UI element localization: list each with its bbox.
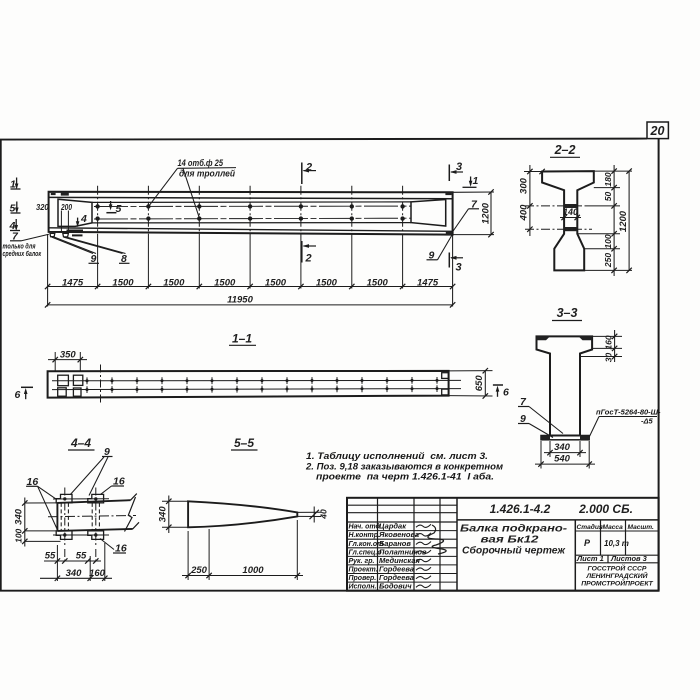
svg-text:4–4: 4–4	[70, 436, 91, 450]
svg-text:Исполн.: Исполн.	[349, 584, 377, 591]
svg-text:2.000 СБ.: 2.000 СБ.	[578, 502, 633, 516]
svg-text:250: 250	[190, 565, 208, 576]
svg-text:1: 1	[473, 175, 479, 187]
svg-text:Провер.: Провер.	[349, 575, 377, 582]
svg-text:1475: 1475	[417, 277, 439, 288]
svg-text:ЛЕНИНГРАДСКИЙ: ЛЕНИНГРАДСКИЙ	[585, 571, 647, 580]
svg-text:ГОССТРОЙ СССР: ГОССТРОЙ СССР	[588, 564, 647, 573]
svg-text:160: 160	[604, 335, 614, 349]
svg-text:3: 3	[456, 262, 462, 274]
svg-text:250: 250	[603, 253, 613, 268]
svg-text:2: 2	[305, 253, 312, 265]
svg-text:пГосТ-5264-80-Ш-: пГосТ-5264-80-Ш-	[596, 408, 661, 417]
svg-text:проекте па черт 1.426.1-41 I: проекте па черт 1.426.1-41 I аба.	[316, 472, 494, 483]
svg-text:1500: 1500	[112, 277, 134, 288]
svg-text:Стадия: Стадия	[577, 523, 603, 531]
svg-text:3: 3	[456, 161, 462, 173]
svg-text:Масса: Масса	[603, 524, 624, 531]
svg-text:Гл.спец.о: Гл.спец.о	[349, 549, 383, 556]
svg-text:55: 55	[76, 551, 87, 562]
svg-text:340: 340	[157, 506, 168, 523]
svg-text:1500: 1500	[316, 277, 338, 288]
svg-text:650: 650	[474, 375, 485, 392]
svg-text:400: 400	[519, 204, 530, 222]
svg-text:200: 200	[60, 203, 72, 212]
svg-text:50: 50	[603, 192, 613, 202]
svg-text:Р: Р	[584, 538, 591, 548]
svg-text:30: 30	[604, 353, 614, 363]
svg-text:10,3 т: 10,3 т	[604, 539, 629, 548]
svg-text:1500: 1500	[214, 277, 236, 288]
svg-text:350: 350	[60, 350, 77, 361]
svg-text:Н.контр.: Н.контр.	[349, 532, 381, 539]
svg-text:1475: 1475	[62, 277, 84, 288]
svg-text:для троллей: для троллей	[179, 169, 235, 180]
svg-text:1200: 1200	[481, 202, 492, 224]
svg-text:3–3: 3–3	[557, 306, 578, 320]
svg-text:40: 40	[318, 509, 328, 520]
svg-text:55: 55	[45, 551, 56, 562]
svg-text:5–5: 5–5	[234, 436, 254, 450]
svg-text:средних балок: средних балок	[3, 250, 42, 258]
svg-text:Проект.: Проект.	[349, 567, 378, 574]
svg-text:Листов 3: Листов 3	[610, 554, 648, 563]
svg-text:1500: 1500	[367, 277, 389, 288]
svg-text:100: 100	[14, 528, 24, 542]
svg-text:2–2: 2–2	[554, 143, 576, 157]
svg-text:11950: 11950	[227, 294, 253, 305]
svg-text:340: 340	[14, 508, 25, 525]
svg-text:6: 6	[503, 387, 509, 399]
svg-text:1. Таблицу исполнений см. лис: 1. Таблицу исполнений см. лист 3.	[306, 451, 488, 462]
svg-text:Бодович: Бодович	[379, 582, 412, 591]
svg-text:340: 340	[554, 442, 571, 453]
svg-text:Масшт.: Масшт.	[628, 524, 655, 531]
svg-text:180: 180	[603, 172, 613, 186]
svg-text:1.426.1-4.2: 1.426.1-4.2	[490, 502, 551, 516]
svg-text:540: 540	[554, 454, 571, 465]
svg-text:5: 5	[116, 203, 122, 215]
svg-text:ПРОМСТРОЙПРОЕКТ: ПРОМСТРОЙПРОЕКТ	[581, 579, 653, 588]
svg-text:20: 20	[650, 124, 665, 138]
svg-text:6: 6	[15, 389, 21, 401]
svg-text:2: 2	[305, 162, 312, 174]
svg-text:1500: 1500	[163, 277, 185, 288]
svg-text:300: 300	[519, 177, 530, 194]
svg-text:Нач. отд: Нач. отд	[349, 523, 381, 531]
svg-text:1200: 1200	[618, 210, 629, 232]
svg-text:только для: только для	[3, 243, 36, 251]
svg-text:1500: 1500	[265, 277, 287, 288]
svg-text:-Δ5: -Δ5	[641, 417, 654, 426]
svg-text:340: 340	[66, 568, 83, 579]
svg-text:4: 4	[80, 213, 87, 225]
svg-text:Рук. гр.: Рук. гр.	[349, 558, 375, 565]
svg-text:100: 100	[603, 234, 613, 248]
svg-text:320: 320	[36, 203, 49, 212]
svg-text:Лист 1: Лист 1	[576, 554, 604, 563]
svg-text:1000: 1000	[242, 565, 264, 576]
svg-text:1–1: 1–1	[232, 332, 252, 346]
svg-text:Сборочный чертеж: Сборочный чертеж	[462, 545, 566, 557]
